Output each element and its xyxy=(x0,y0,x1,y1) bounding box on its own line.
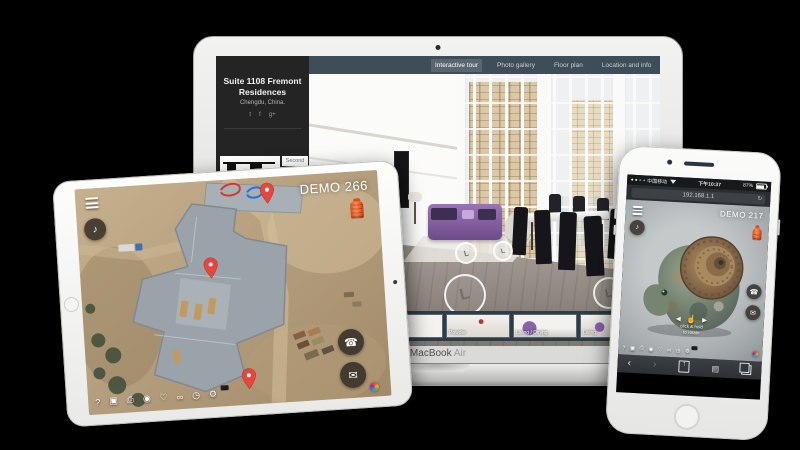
power-button[interactable] xyxy=(777,219,780,235)
phone-icon: ☎ xyxy=(749,287,758,295)
demo-label: DEMO 217 xyxy=(720,209,764,220)
tab-interactive-tour[interactable]: Interactive tour xyxy=(431,59,482,72)
forward-button[interactable]: › xyxy=(653,360,657,370)
sofa-cushion xyxy=(431,208,457,220)
divider xyxy=(224,128,301,129)
tour-navbar: Interactive tour Photo gallery Floor pla… xyxy=(309,56,660,74)
camera-icon[interactable]: ◉ xyxy=(648,346,653,352)
vr-icon[interactable]: ▣ xyxy=(109,395,118,407)
sofa-cushion xyxy=(478,209,496,220)
sofa-pillow xyxy=(462,210,474,219)
history-icon[interactable]: ◷ xyxy=(192,390,201,401)
property-location: Chengdu, China. xyxy=(216,100,309,106)
iphone-home-button[interactable] xyxy=(673,403,700,430)
signal-icon xyxy=(631,179,633,181)
help-icon[interactable]: ? xyxy=(622,345,625,351)
volume-button[interactable] xyxy=(614,209,617,219)
share-button[interactable]: ↑ xyxy=(678,360,690,373)
purple-sofa xyxy=(428,204,502,240)
tour-toolbar: ? ▣ ⎙ ◉ ♡ ∞ ◷ ⚙ xyxy=(622,344,697,355)
call-button[interactable]: ☎ xyxy=(746,284,762,300)
nav-hotspot[interactable]: L xyxy=(455,242,477,264)
arrow-right-icon: ► xyxy=(700,315,709,324)
hotspot-logo-icon: L xyxy=(500,247,506,255)
menu-icon[interactable] xyxy=(85,197,99,209)
model-viewer[interactable]: DEMO 217 ♪ ☎ ✉ ◄ ☝ ► click & hold to rot… xyxy=(618,199,770,361)
music-note-icon: ♪ xyxy=(635,224,639,231)
hotspot-logo-icon: L xyxy=(463,248,470,258)
print-icon[interactable]: ⎙ xyxy=(126,394,134,405)
iphone-camera-icon xyxy=(667,159,672,164)
scene-thumbnail-living-dining[interactable]: Living / Dining xyxy=(513,314,577,338)
carrier-label: 中国移动 xyxy=(647,177,667,185)
link-icon[interactable]: ∞ xyxy=(176,391,183,401)
battery-percent: 87% xyxy=(743,182,753,189)
macbook-lid-notch xyxy=(403,364,469,372)
clock-label: 下午10:37 xyxy=(698,180,721,188)
webcam-icon xyxy=(436,45,441,50)
volume-button[interactable] xyxy=(613,225,616,235)
thumbnail-label: Powder xyxy=(449,330,466,336)
hotspot-logo-icon: L xyxy=(458,285,472,305)
refresh-icon[interactable]: ↻ xyxy=(757,195,762,202)
ipad-home-button[interactable] xyxy=(63,297,79,313)
twitter-icon[interactable]: t xyxy=(249,112,251,118)
print-icon[interactable]: ⎙ xyxy=(639,345,644,352)
settings-icon[interactable]: ⚙ xyxy=(209,389,218,400)
tooltip-badge xyxy=(221,385,229,391)
iphone-screen: 中国移动 下午10:37 87% 192.168.1.1 ↻ xyxy=(616,174,771,399)
tab-location-info[interactable]: Location and info xyxy=(598,59,656,72)
facebook-icon[interactable]: f xyxy=(259,112,261,118)
menu-icon[interactable] xyxy=(632,206,642,215)
battery-icon xyxy=(756,183,767,190)
favorite-icon[interactable]: ♡ xyxy=(159,392,168,403)
dining-chair xyxy=(558,212,577,271)
tabs-button[interactable] xyxy=(741,365,752,376)
arrow-left-icon: ◄ xyxy=(674,314,683,323)
favorite-icon[interactable]: ♡ xyxy=(658,347,663,353)
table-leg xyxy=(531,220,533,250)
thumbnail-label: Living / Dining xyxy=(516,330,547,336)
ipad-screen: ♪ DEMO 266 ☎ ✉ ? ▣ ⎙ ◉ ♡ ∞ ◷ ⚙ xyxy=(75,170,392,415)
google-plus-icon[interactable]: g+ xyxy=(269,112,276,118)
tab-photo-gallery[interactable]: Photo gallery xyxy=(493,59,539,72)
table-lamp xyxy=(414,202,416,224)
phone-icon: ☎ xyxy=(344,335,359,349)
floor-tab-second[interactable]: Second xyxy=(282,156,308,166)
link-icon[interactable]: ∞ xyxy=(667,347,671,353)
dining-chair xyxy=(512,207,528,256)
iphone-speaker xyxy=(684,161,714,167)
social-links: t f g+ xyxy=(216,112,309,118)
brand-name: MacBook xyxy=(410,348,452,359)
scene-thumbnail-powder[interactable]: Powder xyxy=(446,314,510,338)
brand-variant: Air xyxy=(454,348,466,359)
nav-hotspot[interactable]: L xyxy=(444,274,486,316)
wifi-icon xyxy=(670,180,676,184)
envelope-icon: ✉ xyxy=(750,309,756,317)
history-icon[interactable]: ◷ xyxy=(675,348,680,354)
share-arrow-icon: ↑ xyxy=(682,362,686,368)
tab-floor-plan[interactable]: Floor plan xyxy=(550,59,587,72)
music-note-icon: ♪ xyxy=(92,224,98,235)
envelope-icon: ✉ xyxy=(348,368,358,382)
nav-hotspot[interactable]: L xyxy=(493,241,513,261)
ipad-camera-icon xyxy=(393,280,397,284)
camera-icon[interactable]: ◉ xyxy=(143,393,152,404)
product-showcase: Interactive tour Photo gallery Floor pla… xyxy=(0,0,800,450)
thumbnail-label: Living xyxy=(583,330,596,336)
app-logo-icon[interactable] xyxy=(752,351,758,357)
hydrant-marker-icon[interactable] xyxy=(752,228,762,240)
vr-icon[interactable]: ▣ xyxy=(630,345,636,351)
url-text: 192.168.1.1 xyxy=(682,192,714,200)
back-button[interactable]: ‹ xyxy=(627,359,631,369)
dining-chair xyxy=(583,216,604,277)
settings-icon[interactable]: ⚙ xyxy=(685,348,690,354)
iphone-device: 中国移动 下午10:37 87% 192.168.1.1 ↻ xyxy=(605,145,782,441)
table-lamp xyxy=(408,192,422,202)
ipad-device: ♪ DEMO 266 ☎ ✉ ? ▣ ⎙ ◉ ♡ ∞ ◷ ⚙ xyxy=(52,160,413,428)
help-icon[interactable]: ? xyxy=(95,397,101,407)
property-title: Suite 1108 Fremont Residences xyxy=(222,76,303,98)
tooltip-badge xyxy=(691,346,697,350)
bookmarks-button[interactable]: ▤ xyxy=(711,364,719,373)
hydrant-marker-icon[interactable] xyxy=(350,201,364,219)
dining-chair xyxy=(534,210,552,265)
